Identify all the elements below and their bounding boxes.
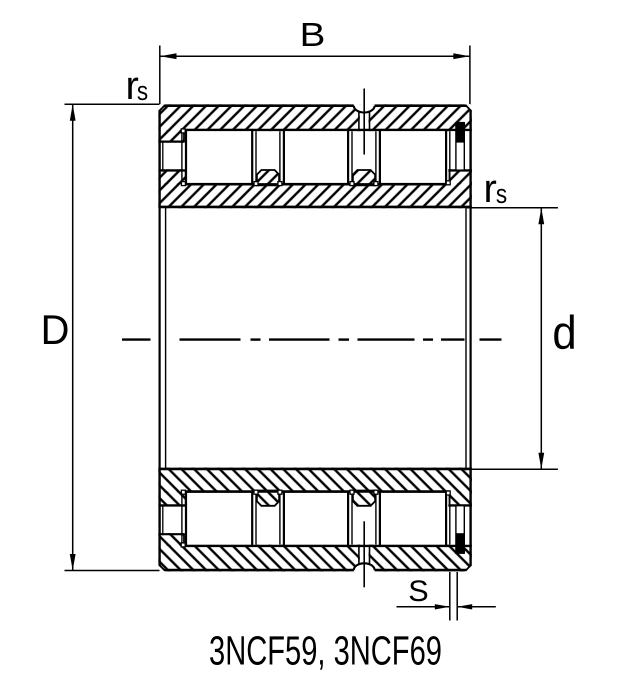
svg-text:D: D (41, 306, 70, 353)
svg-text:S: S (408, 575, 428, 608)
svg-text:B: B (300, 15, 326, 53)
svg-text:3NCF59, 3NCF69: 3NCF59, 3NCF69 (209, 628, 442, 674)
svg-text:s: s (496, 180, 507, 209)
svg-text:r: r (484, 167, 497, 211)
svg-text:d: d (552, 307, 576, 360)
svg-text:s: s (137, 77, 148, 106)
